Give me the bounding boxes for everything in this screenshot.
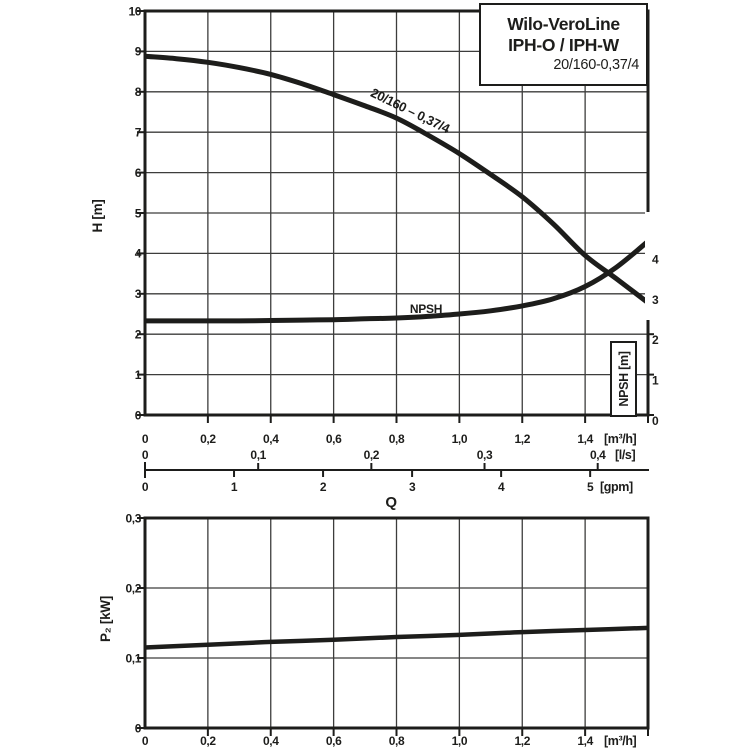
m3h-tick-label: 1,4 xyxy=(577,734,593,748)
h-axis-label: H [m] xyxy=(88,156,108,276)
title-brand: Wilo-VeroLine xyxy=(507,14,620,35)
p2-axis-tick-label: 0,1 xyxy=(126,651,142,665)
npsh-curve-label: NPSH xyxy=(396,302,456,316)
m3h-tick-label: 1,2 xyxy=(515,432,531,446)
ls-unit-label: [l/s] xyxy=(615,448,635,462)
p2-axis-tick-label: 0,3 xyxy=(126,511,142,525)
m3h-tick-label: 0,6 xyxy=(326,432,342,446)
m3h-tick-label: 1,0 xyxy=(452,432,468,446)
ls-tick-label: 0 xyxy=(142,448,149,462)
h-axis-tick-label: 1 xyxy=(135,368,142,382)
title-box: Wilo-VeroLine IPH-O / IPH-W 20/160-0,37/… xyxy=(479,3,648,86)
m3h-tick-label: 0,2 xyxy=(200,432,216,446)
p2-axis-label: P₂ [kW] xyxy=(96,559,116,679)
m3h-tick-label: 0,4 xyxy=(263,432,279,446)
m3h-tick-label: 0,8 xyxy=(389,432,405,446)
m3h-tick-label: 1,2 xyxy=(515,734,531,748)
gpm-tick-label: 0 xyxy=(142,480,149,494)
m3h-tick-label: 0,8 xyxy=(389,734,405,748)
m3h-tick-label: 0,6 xyxy=(326,734,342,748)
h-axis-tick-label: 3 xyxy=(135,287,142,301)
npsh-axis-tick-label: 4 xyxy=(652,252,659,266)
gpm-tick-label: 2 xyxy=(320,480,327,494)
h-axis-tick-label: 8 xyxy=(135,85,142,99)
h-axis-tick-label: 9 xyxy=(135,45,142,59)
title-model: 20/160-0,37/4 xyxy=(553,56,646,75)
ls-tick-label: 0,4 xyxy=(590,448,606,462)
gpm-unit-label: [gpm] xyxy=(600,480,633,494)
m3h-tick-label: 0 xyxy=(142,734,149,748)
m3h-tick-label: 1,4 xyxy=(577,432,593,446)
p2-axis-tick-label: 0,2 xyxy=(126,581,142,595)
q-axis-label: Q xyxy=(371,494,411,511)
title-series: IPH-O / IPH-W xyxy=(508,35,619,56)
h-axis-tick-label: 4 xyxy=(135,247,142,261)
npsh-axis-tick-label: 2 xyxy=(652,333,659,347)
m3h-unit-label: [m³/h] xyxy=(604,734,637,748)
ls-tick-label: 0,1 xyxy=(250,448,266,462)
gpm-tick-label: 4 xyxy=(498,480,505,494)
gpm-tick-label: 1 xyxy=(231,480,238,494)
h-axis-tick-label: 2 xyxy=(135,328,142,342)
h-axis-tick-label: 10 xyxy=(128,4,141,18)
gpm-tick-label: 5 xyxy=(587,480,594,494)
m3h-tick-label: 0,4 xyxy=(263,734,279,748)
npsh-axis-tick-label: 3 xyxy=(652,293,659,307)
h-axis-tick-label: 6 xyxy=(135,166,142,180)
m3h-tick-label: 1,0 xyxy=(452,734,468,748)
npsh-axis-label: NPSH [m] xyxy=(617,351,631,406)
npsh-axis-tick-label: 1 xyxy=(652,374,659,388)
m3h-tick-label: 0,2 xyxy=(200,734,216,748)
pump-datasheet-page: 0123456789100123400,20,40,60,81,01,21,4[… xyxy=(0,0,750,750)
m3h-tick-label: 0 xyxy=(142,432,149,446)
m3h-unit-label: [m³/h] xyxy=(604,432,637,446)
npsh-axis-box: NPSH [m] xyxy=(610,341,637,417)
gpm-tick-label: 3 xyxy=(409,480,416,494)
ls-tick-label: 0,2 xyxy=(364,448,380,462)
h-axis-tick-label: 5 xyxy=(135,206,142,220)
ls-tick-label: 0,3 xyxy=(477,448,493,462)
p2-axis-tick-label: 0 xyxy=(135,721,142,735)
npsh-axis-tick-label: 0 xyxy=(652,414,659,428)
h-axis-tick-label: 0 xyxy=(135,408,142,422)
h-axis-tick-label: 7 xyxy=(135,126,142,140)
